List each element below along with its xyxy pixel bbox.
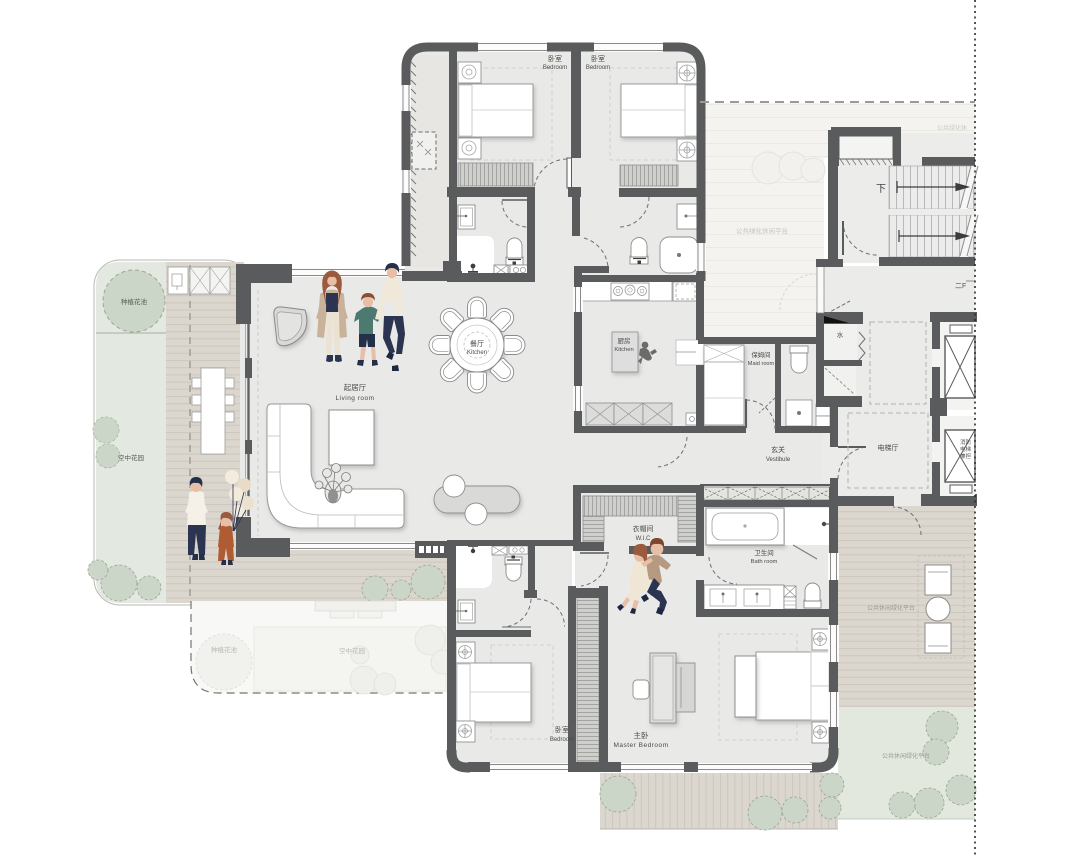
svg-text:公共休闲绿化平台: 公共休闲绿化平台 xyxy=(867,604,915,612)
svg-text:种植花池: 种植花池 xyxy=(211,645,238,654)
svg-text:空中花园: 空中花园 xyxy=(118,453,144,462)
svg-text:Maid room: Maid room xyxy=(748,361,775,367)
svg-text:Bath room: Bath room xyxy=(751,559,778,565)
svg-text:卧室: 卧室 xyxy=(555,725,569,734)
svg-text:衣帽间: 衣帽间 xyxy=(633,524,654,533)
svg-text:餐厅: 餐厅 xyxy=(470,339,484,348)
svg-text:保姆间: 保姆间 xyxy=(752,350,771,359)
svg-text:起居厅: 起居厅 xyxy=(344,383,367,392)
svg-text:电梯: 电梯 xyxy=(960,445,972,453)
svg-text:公共休闲绿化平台: 公共休闲绿化平台 xyxy=(882,752,930,760)
svg-text:Bedroom: Bedroom xyxy=(543,65,567,71)
svg-text:消防: 消防 xyxy=(960,438,972,446)
svg-text:Bedroom: Bedroom xyxy=(586,65,610,71)
svg-text:主卧: 主卧 xyxy=(634,730,649,740)
svg-text:电梯厅: 电梯厅 xyxy=(878,443,899,452)
svg-text:公共绿化休: 公共绿化休 xyxy=(937,124,967,132)
svg-text:Living room: Living room xyxy=(335,395,374,402)
svg-text:卧室: 卧室 xyxy=(548,54,562,63)
svg-text:Kitchen: Kitchen xyxy=(614,347,633,353)
svg-text:卫生间: 卫生间 xyxy=(754,548,774,557)
svg-text:Vestibule: Vestibule xyxy=(766,457,791,463)
svg-text:公共绿化休闲平台: 公共绿化休闲平台 xyxy=(736,226,788,235)
svg-text:Bedroom: Bedroom xyxy=(550,737,574,743)
svg-text:玄关: 玄关 xyxy=(771,445,785,454)
svg-text:兼担: 兼担 xyxy=(960,452,972,460)
svg-text:二F: 二F xyxy=(955,283,966,290)
svg-text:种植花池: 种植花池 xyxy=(121,297,148,306)
svg-text:下: 下 xyxy=(876,184,886,195)
svg-text:Kitchen: Kitchen xyxy=(467,350,487,356)
svg-text:W.I.C: W.I.C xyxy=(636,536,651,542)
svg-text:水: 水 xyxy=(837,330,844,339)
svg-text:卧室: 卧室 xyxy=(591,54,605,63)
svg-text:Master Bedroom: Master Bedroom xyxy=(613,742,668,749)
svg-text:厨房: 厨房 xyxy=(618,336,631,345)
svg-text:空中花园: 空中花园 xyxy=(339,646,365,655)
